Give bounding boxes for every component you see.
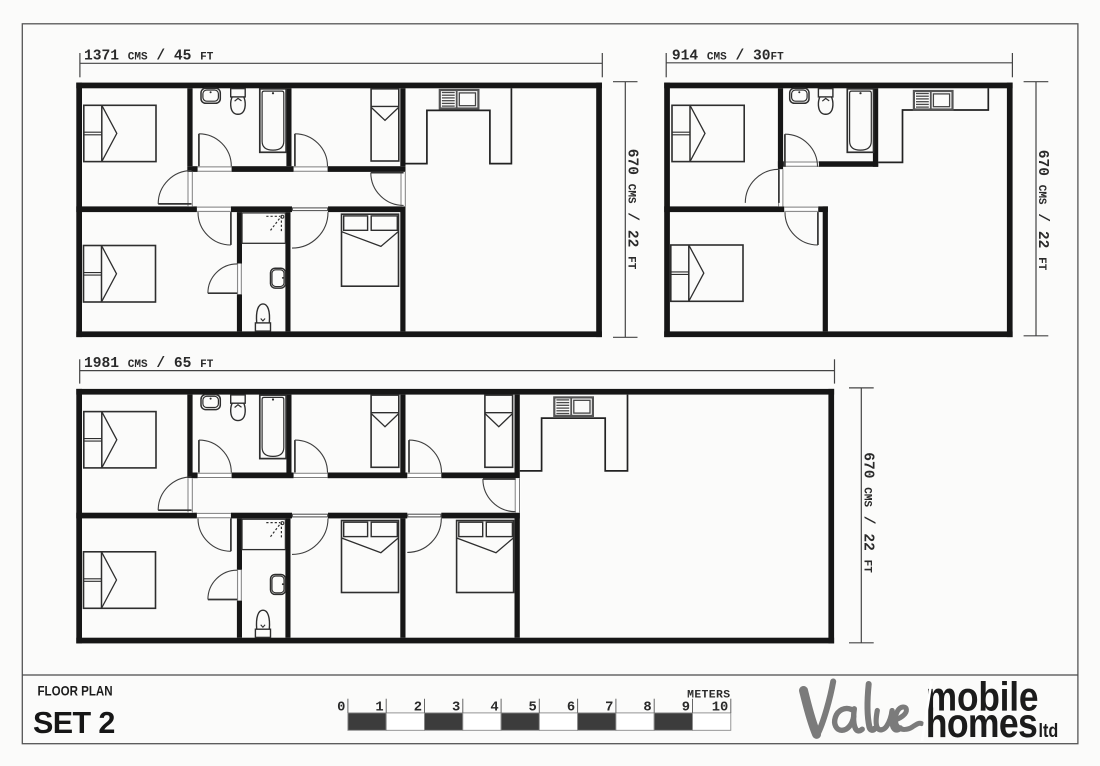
svg-text:ltd: ltd	[1039, 720, 1059, 742]
svg-text:SET 2: SET 2	[33, 706, 115, 740]
svg-text:670 CMS / 22 FT: 670 CMS / 22 FT	[623, 149, 639, 270]
svg-text:0: 0	[337, 700, 345, 715]
svg-text:8: 8	[643, 700, 651, 715]
svg-text:9: 9	[682, 700, 690, 715]
svg-text:homes: homes	[926, 701, 1037, 747]
svg-text:METERS: METERS	[687, 690, 730, 702]
svg-text:670 CMS / 22 FT: 670 CMS / 22 FT	[859, 452, 875, 573]
svg-text:5: 5	[529, 700, 537, 715]
svg-text:1981 CMS / 65 FT: 1981 CMS / 65 FT	[84, 356, 214, 372]
svg-text:2: 2	[414, 700, 422, 715]
svg-text:1: 1	[375, 700, 383, 715]
svg-text:914 CMS / 30FT: 914 CMS / 30FT	[672, 49, 784, 65]
svg-text:6: 6	[567, 700, 575, 715]
svg-text:7: 7	[605, 700, 613, 715]
svg-text:670 CMS / 22 FT: 670 CMS / 22 FT	[1034, 150, 1050, 271]
svg-text:FLOOR PLAN: FLOOR PLAN	[38, 684, 113, 699]
svg-text:4: 4	[490, 700, 498, 715]
svg-text:1371 CMS / 45 FT: 1371 CMS / 45 FT	[84, 49, 214, 65]
svg-text:3: 3	[452, 700, 460, 715]
svg-text:10: 10	[712, 700, 729, 715]
